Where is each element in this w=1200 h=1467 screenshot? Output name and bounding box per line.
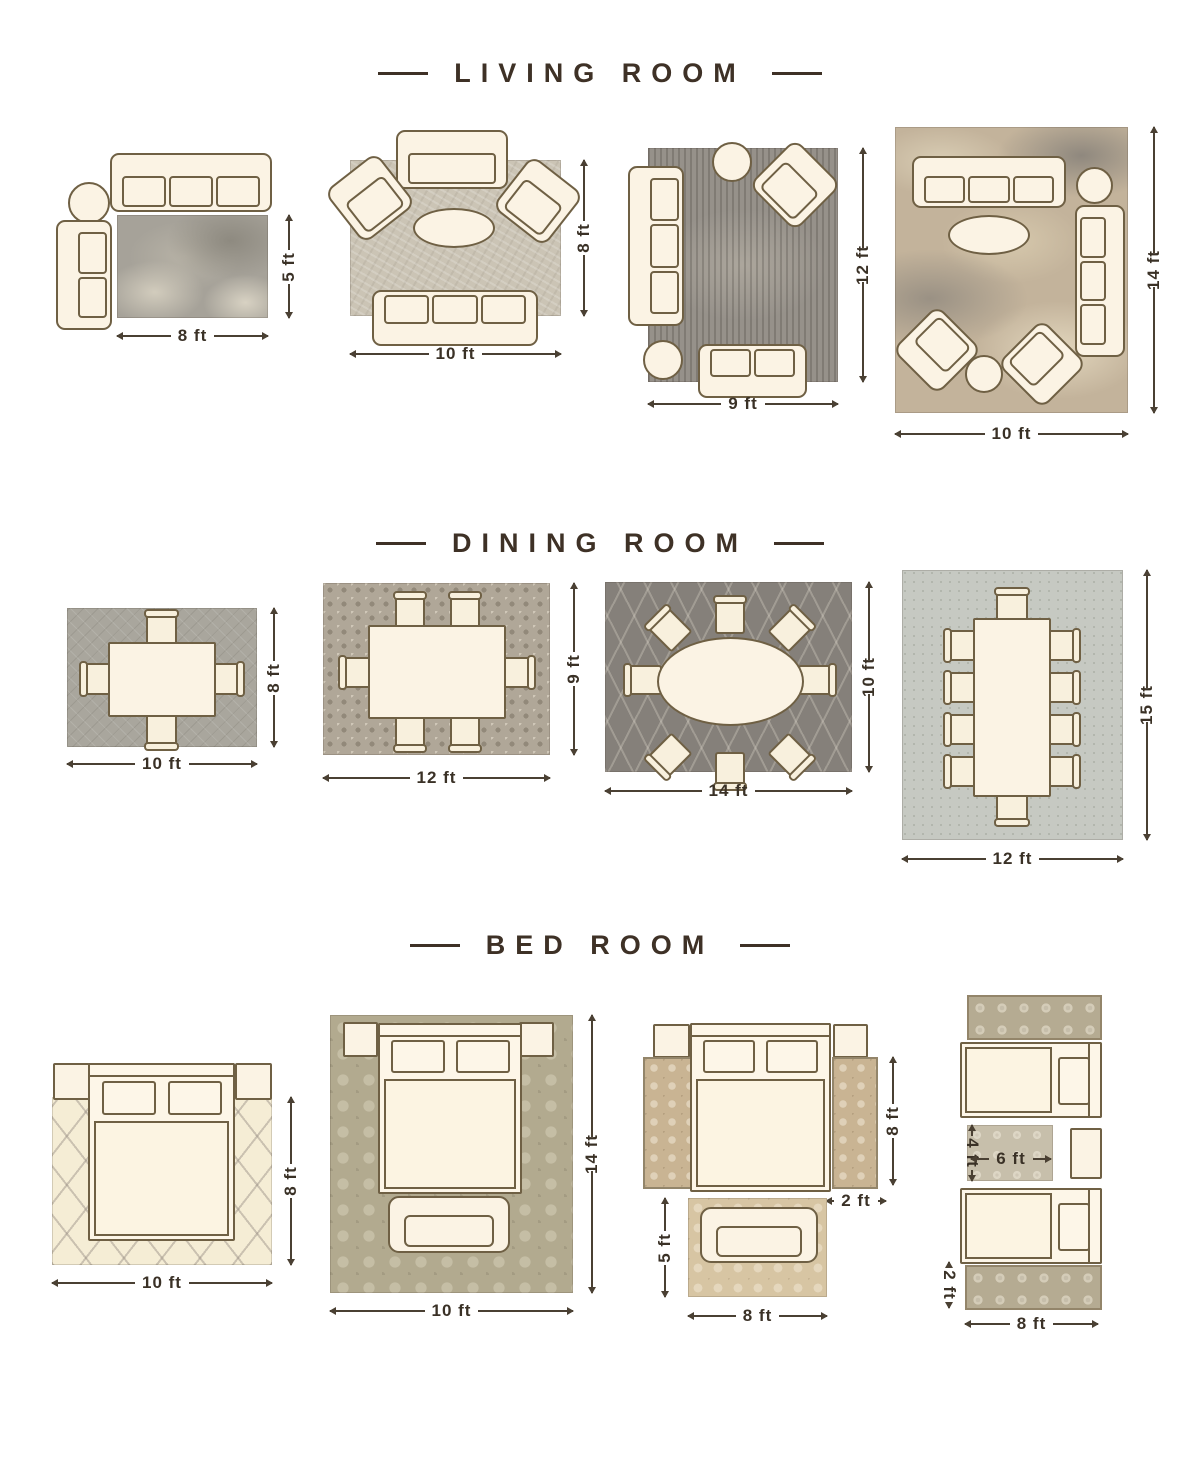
settee (56, 220, 112, 330)
round-ottoman (643, 340, 683, 380)
oval-dining-table (657, 637, 804, 726)
loveseat (698, 344, 807, 398)
height-dimension: 5 ft (278, 215, 300, 318)
loveseat (396, 130, 508, 189)
dining-table (368, 625, 506, 719)
height-dimension: 12 ft (852, 148, 874, 382)
width-dimension: 12 ft (902, 848, 1123, 870)
title-dash (410, 944, 460, 947)
dining-room-layout-2: 9 ft 12 ft (315, 575, 580, 790)
nightstand (1070, 1128, 1102, 1179)
dining-table (108, 642, 216, 717)
dining-room-layout-4: 15 ft 12 ft (895, 558, 1155, 868)
oval-coffee-table (413, 208, 495, 248)
section-title-living-room: LIVING ROOM (0, 58, 1200, 89)
height-dimension: 8 ft (263, 608, 285, 747)
oval-coffee-table (948, 215, 1030, 255)
width-dimension: 10 ft (895, 423, 1128, 445)
bed-room-layout-2: 14 ft 10 ft (325, 1005, 600, 1320)
bed-room-layout-3: 8 ft 2 ft 5 ft 8 ft (630, 1010, 910, 1330)
width-dimension: 8 ft (965, 1313, 1098, 1335)
height-dimension: 14 ft (581, 1015, 603, 1293)
bed (88, 1063, 235, 1241)
living-room-layout-4: 14 ft 10 ft (885, 115, 1175, 445)
twin-bed (960, 1042, 1102, 1118)
width-dimension: 10 ft (67, 753, 257, 775)
dining-chair (715, 600, 745, 634)
nightstand (343, 1022, 378, 1057)
bed-room-layout-1: 8 ft 10 ft (40, 1050, 305, 1295)
height-dimension: 10 ft (858, 582, 880, 772)
side-runner-rug (832, 1057, 878, 1189)
round-ottoman (965, 355, 1003, 393)
runner-rug (967, 995, 1102, 1040)
dining-chair (146, 712, 177, 746)
bed-room-layout-4: 4 ft 6 ft 2 ft 8 ft (925, 985, 1200, 1335)
twin-bed (960, 1188, 1102, 1264)
width-dimension: 12 ft (323, 767, 550, 789)
width-dimension: 10 ft (350, 343, 561, 365)
nightstand (653, 1024, 690, 1058)
runner-rug (965, 1265, 1102, 1310)
title-dash (378, 72, 428, 75)
runner-width-dimension: 2 ft (826, 1190, 886, 1212)
nightstand (53, 1063, 90, 1100)
nightstand (833, 1024, 868, 1058)
title-dash (774, 542, 824, 545)
nightstand (235, 1063, 272, 1100)
width-dimension: 10 ft (52, 1272, 272, 1294)
sofa (110, 153, 272, 212)
accent-rug-width-dimension: 6 ft (971, 1148, 1051, 1170)
side-runner-rug (643, 1057, 692, 1189)
rug-size-guide: LIVING ROOM 5 ft 8 ft 8 ft (0, 0, 1200, 1467)
height-dimension: 8 ft (573, 160, 595, 316)
runner-length-dimension: 8 ft (882, 1057, 904, 1185)
foot-rug-width-dimension: 8 ft (688, 1305, 827, 1327)
round-side-table (712, 142, 752, 182)
title-dash (376, 542, 426, 545)
width-dimension: 8 ft (117, 325, 268, 347)
sofa (1075, 205, 1125, 357)
dining-table (973, 618, 1051, 797)
sofa (628, 166, 684, 326)
round-side-table (1076, 167, 1113, 204)
width-dimension: 14 ft (605, 780, 852, 802)
section-title-text: DINING ROOM (452, 528, 748, 559)
height-dimension: 15 ft (1136, 570, 1158, 840)
section-title-bed-room: BED ROOM (0, 930, 1200, 961)
title-dash (740, 944, 790, 947)
sofa (912, 156, 1066, 208)
living-room-layout-2: 8 ft 10 ft (330, 115, 600, 360)
foot-rug-height-dimension: 5 ft (654, 1198, 676, 1297)
height-dimension: 9 ft (563, 583, 585, 755)
bed (690, 1023, 831, 1192)
sofa (372, 290, 538, 346)
bench (388, 1196, 510, 1253)
section-title-text: BED ROOM (486, 930, 715, 961)
width-dimension: 9 ft (648, 393, 838, 415)
bed (378, 1023, 522, 1194)
bench (700, 1207, 818, 1263)
height-dimension: 14 ft (1143, 127, 1165, 413)
runner-width-dimension: 2 ft (938, 1262, 960, 1308)
dining-room-layout-3: 10 ft 14 ft (595, 572, 880, 802)
rug (117, 215, 268, 318)
section-title-dining-room: DINING ROOM (0, 528, 1200, 559)
width-dimension: 10 ft (330, 1300, 573, 1322)
round-side-table (68, 182, 110, 224)
nightstand (519, 1022, 554, 1057)
living-room-layout-3: 12 ft 9 ft (620, 125, 880, 415)
dining-room-layout-1: 8 ft 10 ft (55, 595, 290, 780)
title-dash (772, 72, 822, 75)
height-dimension: 8 ft (280, 1097, 302, 1265)
section-title-text: LIVING ROOM (454, 58, 746, 89)
living-room-layout-1: 5 ft 8 ft (50, 130, 300, 345)
